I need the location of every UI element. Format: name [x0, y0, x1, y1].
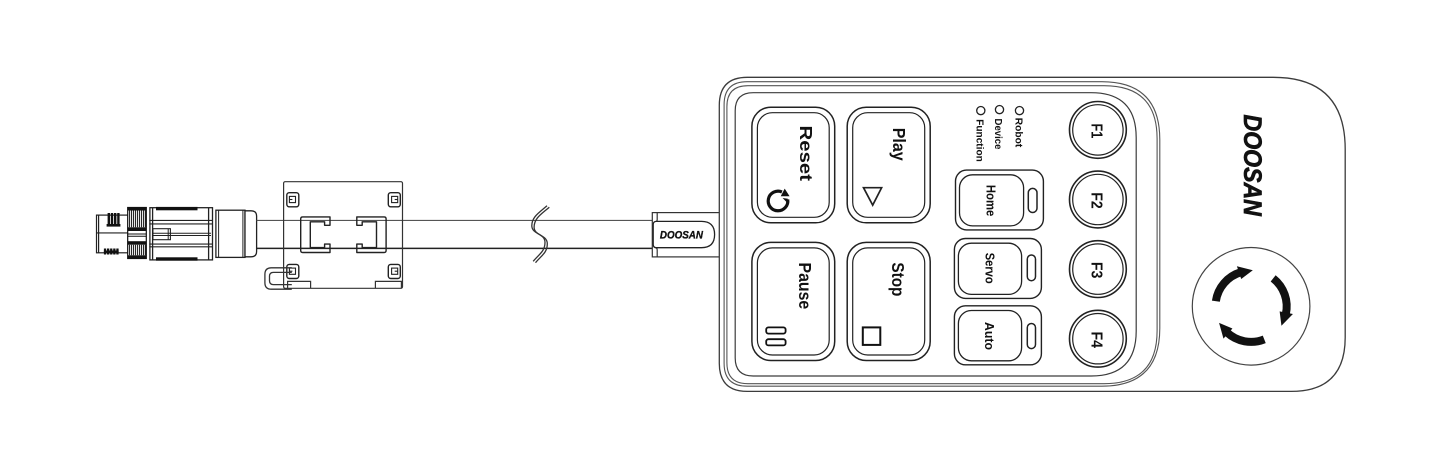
svg-text:DOOSAN: DOOSAN: [660, 229, 704, 241]
svg-text:Robot: Robot: [1013, 118, 1024, 148]
svg-text:DOOSAN: DOOSAN: [1238, 115, 1266, 217]
svg-text:Stop: Stop: [888, 262, 908, 296]
svg-text:Device: Device: [992, 119, 1003, 150]
svg-text:Play: Play: [889, 128, 909, 161]
svg-text:Reset: Reset: [796, 126, 816, 182]
svg-text:F3: F3: [1088, 262, 1105, 279]
svg-text:Function: Function: [974, 119, 985, 162]
svg-text:F2: F2: [1088, 192, 1105, 209]
svg-text:Auto: Auto: [982, 322, 997, 350]
svg-text:F4: F4: [1088, 331, 1105, 348]
svg-text:Home: Home: [983, 185, 998, 216]
svg-text:F1: F1: [1088, 123, 1105, 138]
svg-text:Servo: Servo: [982, 253, 997, 284]
svg-text:Pause: Pause: [795, 263, 815, 310]
